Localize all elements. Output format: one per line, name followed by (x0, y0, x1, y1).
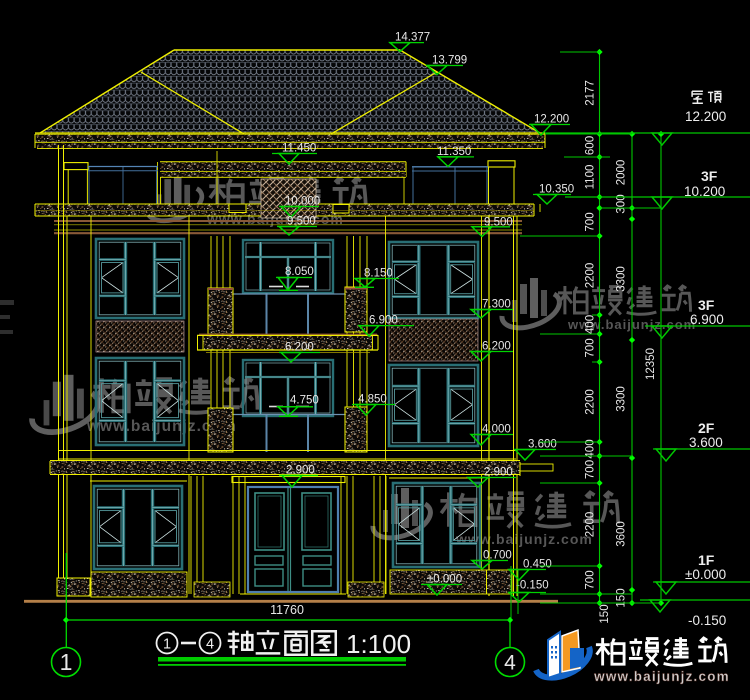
svg-text:4.850: 4.850 (358, 394, 387, 406)
svg-text:2000: 2000 (616, 160, 628, 186)
svg-text:6.900: 6.900 (690, 312, 724, 327)
svg-text:12350: 12350 (645, 348, 657, 380)
svg-text:±0.000: ±0.000 (685, 567, 726, 582)
svg-text:8.050: 8.050 (285, 266, 314, 278)
svg-text:10.350: 10.350 (539, 184, 574, 196)
svg-text:9.500: 9.500 (287, 216, 316, 228)
svg-text:2200: 2200 (585, 389, 597, 415)
svg-text:14.377: 14.377 (395, 32, 430, 44)
svg-text:10.000: 10.000 (285, 196, 320, 208)
svg-text:2.900: 2.900 (484, 467, 513, 479)
svg-text:6.200: 6.200 (285, 342, 314, 354)
svg-text:12.200: 12.200 (685, 109, 726, 124)
svg-text:3.600: 3.600 (528, 439, 557, 451)
svg-text:1: 1 (163, 637, 171, 653)
svg-text:700: 700 (585, 338, 597, 357)
svg-text:2200: 2200 (585, 512, 597, 538)
svg-text:3600: 3600 (616, 521, 628, 547)
svg-text:700: 700 (585, 570, 597, 589)
svg-text:11.450: 11.450 (282, 143, 316, 155)
svg-text:3300: 3300 (616, 386, 628, 412)
svg-text:4.750: 4.750 (290, 395, 319, 407)
svg-text:700: 700 (585, 460, 597, 479)
svg-text:150: 150 (616, 588, 628, 607)
svg-text:13.799: 13.799 (432, 55, 467, 67)
svg-text:www.baijunjz.com: www.baijunjz.com (593, 669, 730, 684)
svg-text:4.000: 4.000 (482, 424, 511, 436)
svg-text:1F: 1F (698, 552, 715, 568)
svg-text:±0.000: ±0.000 (427, 574, 462, 586)
svg-text:6.200: 6.200 (482, 341, 511, 353)
svg-text:3.600: 3.600 (689, 435, 723, 450)
svg-text:3300: 3300 (616, 266, 628, 292)
svg-text:0.700: 0.700 (483, 550, 512, 562)
svg-text:2.900: 2.900 (286, 465, 315, 477)
svg-text:1: 1 (60, 649, 73, 675)
svg-text:4: 4 (206, 637, 214, 653)
svg-text:0.450: 0.450 (523, 559, 552, 571)
svg-text:12.200: 12.200 (534, 114, 569, 126)
svg-text:6.900: 6.900 (369, 315, 398, 327)
svg-text:7.300: 7.300 (482, 299, 511, 311)
svg-text:600: 600 (585, 136, 597, 155)
svg-text:-0.150: -0.150 (688, 613, 726, 628)
svg-text:11760: 11760 (270, 603, 304, 617)
svg-text:8.150: 8.150 (364, 268, 393, 280)
svg-text:1100: 1100 (585, 165, 597, 190)
svg-text:400: 400 (585, 315, 597, 334)
svg-text:4: 4 (504, 652, 516, 675)
svg-text:-0.150: -0.150 (516, 580, 549, 592)
svg-text:150: 150 (599, 604, 611, 623)
svg-text:2200: 2200 (585, 263, 597, 289)
svg-text:700: 700 (585, 212, 597, 231)
svg-text:2F: 2F (698, 420, 715, 436)
svg-text:1:100: 1:100 (346, 629, 411, 659)
svg-text:3F: 3F (698, 297, 715, 313)
svg-text:3F: 3F (701, 168, 718, 184)
svg-text:10.200: 10.200 (684, 184, 725, 199)
svg-text:2177: 2177 (585, 80, 597, 106)
